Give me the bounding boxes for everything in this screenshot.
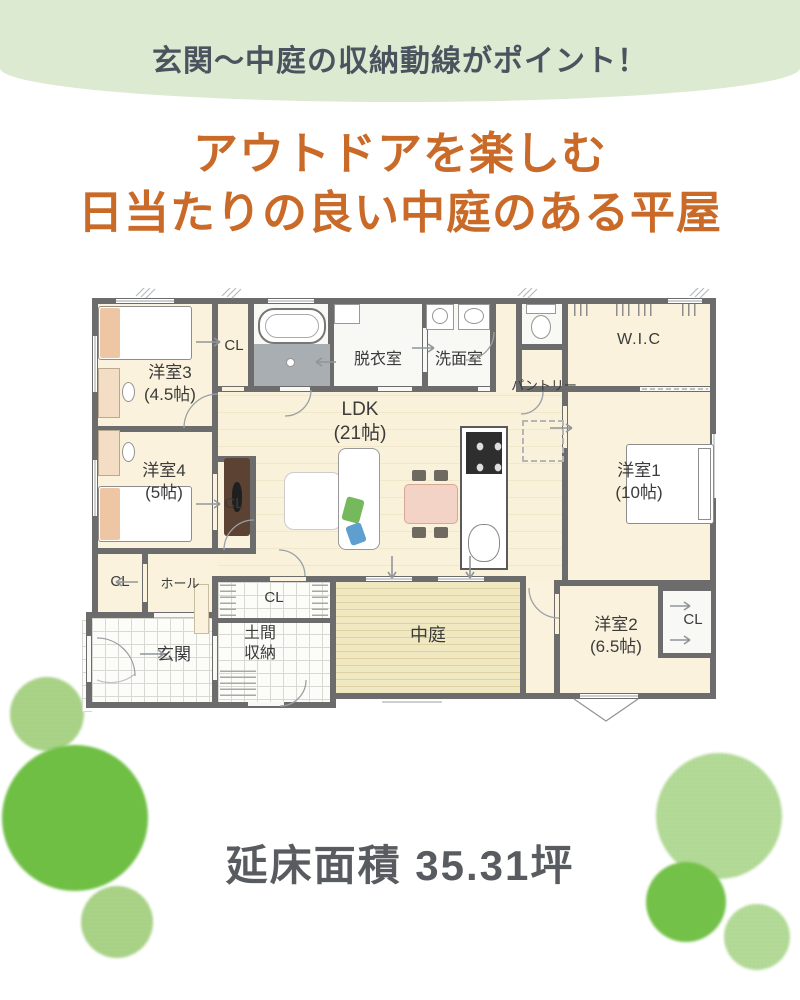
chair bbox=[122, 382, 135, 402]
wall-segment bbox=[520, 693, 560, 699]
label-yoshitsu3: 洋室3 (4.5帖) bbox=[144, 362, 196, 406]
hanger-marks-icon bbox=[574, 304, 590, 316]
door-gap bbox=[280, 387, 310, 391]
window bbox=[116, 299, 174, 303]
green-circle-decoration bbox=[81, 886, 153, 958]
door-gap-wic bbox=[640, 387, 710, 391]
door-gap bbox=[222, 387, 244, 391]
floor-plan: 洋室3 (4.5帖) CL 脱衣室 洗面室 パントリー W.I.C LDK (2… bbox=[82, 288, 727, 733]
chair bbox=[412, 527, 426, 538]
hanger-marks-icon bbox=[616, 304, 632, 316]
bed-pillow bbox=[100, 488, 120, 540]
door-gap bbox=[378, 387, 412, 391]
door-gap bbox=[555, 594, 559, 634]
label-hall-cl: CL bbox=[110, 572, 129, 591]
label-hall: ホール bbox=[160, 576, 199, 593]
green-circle-decoration bbox=[2, 745, 148, 891]
dining-table bbox=[404, 484, 458, 524]
window bbox=[668, 299, 702, 303]
toilet-bowl-icon bbox=[531, 315, 551, 339]
label-pantry: パントリー bbox=[511, 378, 577, 395]
chair bbox=[434, 470, 448, 481]
green-circle-decoration bbox=[646, 862, 726, 942]
banner-text: 玄関〜中庭の収納動線がポイント！ bbox=[0, 36, 800, 80]
toilet-tank bbox=[526, 304, 556, 314]
terrace-mark-icon bbox=[574, 699, 638, 721]
window bbox=[580, 694, 638, 698]
door-gap bbox=[248, 702, 284, 706]
desk bbox=[98, 368, 120, 418]
shelf-marks-icon bbox=[312, 584, 328, 616]
sliding-door bbox=[438, 577, 484, 581]
cabinet bbox=[334, 304, 360, 324]
storage-dashed-box bbox=[522, 420, 564, 462]
label-yoshitsu4: 洋室4 (5帖) bbox=[142, 460, 185, 504]
chair bbox=[412, 470, 426, 481]
roof-hatch-icons bbox=[136, 288, 709, 298]
label-ldk: LDK (21帖) bbox=[334, 398, 387, 447]
door-gap bbox=[143, 564, 147, 602]
hanger-marks-icon bbox=[682, 304, 698, 316]
label-doma: 土間 収納 bbox=[244, 624, 276, 665]
label-cl2: CL bbox=[683, 610, 702, 629]
green-circle-decoration bbox=[10, 677, 84, 751]
window bbox=[268, 299, 314, 303]
label-nakaniwa: 中庭 bbox=[410, 624, 446, 647]
window bbox=[93, 460, 97, 516]
label-doma-cl: CL bbox=[264, 588, 283, 607]
kitchen-sink bbox=[468, 524, 500, 562]
chair bbox=[434, 527, 448, 538]
wall-segment bbox=[490, 298, 522, 304]
label-cl4: CL bbox=[224, 494, 243, 513]
door-gap bbox=[213, 474, 217, 530]
rug bbox=[284, 472, 342, 530]
label-yoshitsu2: 洋室2 (6.5帖) bbox=[590, 614, 642, 658]
door-gap bbox=[478, 387, 490, 391]
door-gap bbox=[423, 328, 427, 372]
bathtub-inner bbox=[265, 314, 319, 338]
shelf-marks-icon bbox=[220, 584, 236, 616]
sliding-door bbox=[382, 700, 442, 704]
hanger-marks-icon bbox=[638, 304, 654, 316]
washer-drum-icon bbox=[432, 308, 448, 324]
door-gap bbox=[213, 636, 217, 680]
wall-doma-cl bbox=[218, 618, 330, 623]
shelf-marks-icon bbox=[220, 670, 256, 696]
basin-bowl-icon bbox=[464, 308, 484, 324]
label-genkan: 玄関 bbox=[157, 644, 191, 666]
page-title: アウトドアを楽しむ 日当たりの良い中庭のある平屋 bbox=[0, 124, 800, 243]
label-yoshitsu1: 洋室1 (10帖) bbox=[615, 460, 662, 504]
room-ldk-floor bbox=[212, 386, 566, 582]
bed-headboard bbox=[698, 448, 711, 520]
stove-icon bbox=[466, 432, 502, 474]
chair bbox=[122, 442, 135, 462]
title-line1: アウトドアを楽しむ bbox=[0, 124, 800, 183]
sliding-door bbox=[366, 577, 412, 581]
green-circle-decoration bbox=[656, 753, 782, 879]
desk bbox=[98, 430, 120, 476]
door-gap-genkan bbox=[87, 636, 91, 682]
window bbox=[93, 336, 97, 392]
drain-icon bbox=[286, 358, 295, 367]
label-cl3: CL bbox=[224, 336, 243, 355]
door-gap bbox=[270, 577, 306, 581]
label-datsuishitsu: 脱衣室 bbox=[354, 350, 402, 370]
label-senmenshitsu: 洗面室 bbox=[435, 350, 483, 370]
title-line2: 日当たりの良い中庭のある平屋 bbox=[0, 183, 800, 242]
label-wic: W.I.C bbox=[617, 330, 661, 350]
bed-pillow bbox=[100, 308, 120, 358]
green-circle-decoration bbox=[724, 904, 790, 970]
